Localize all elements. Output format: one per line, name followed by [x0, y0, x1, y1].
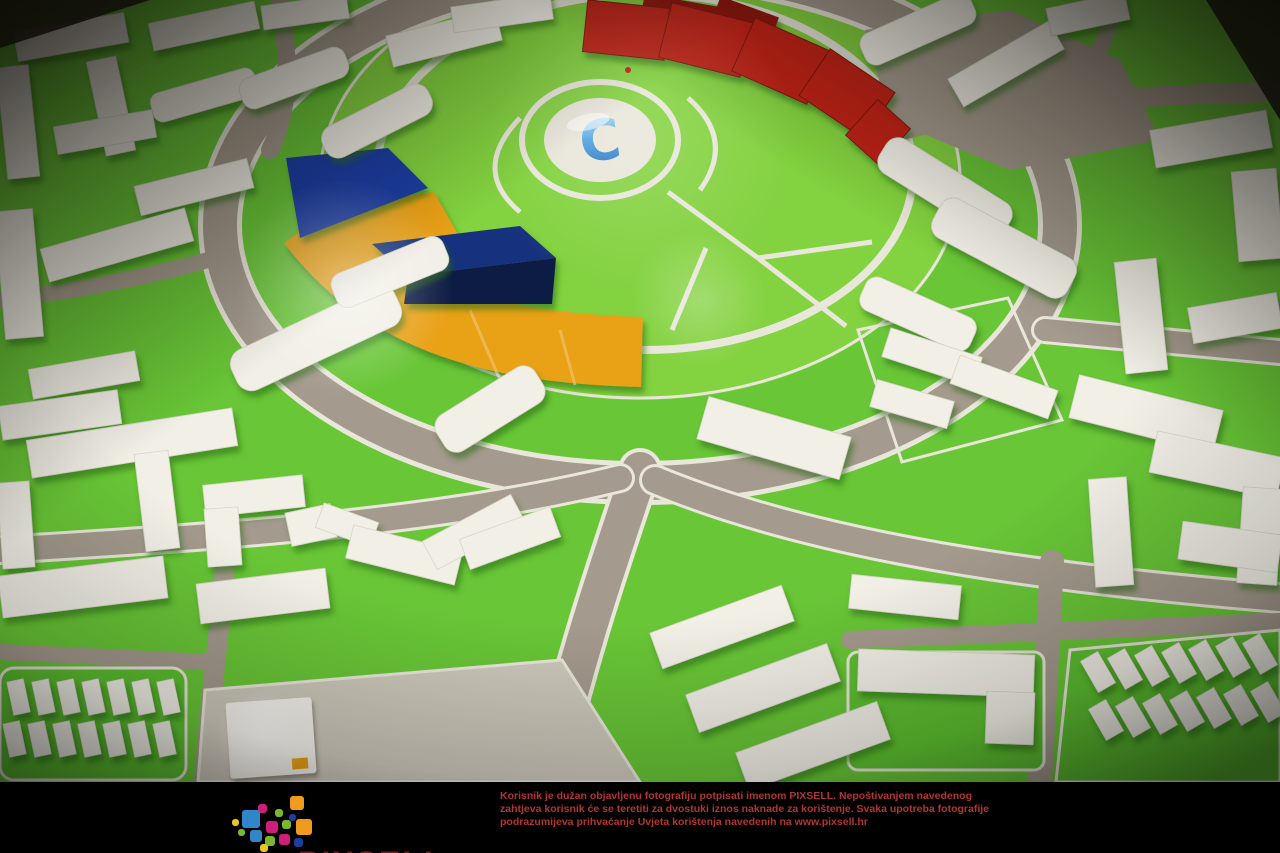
pixsell-logo: PIXSELL: [232, 782, 482, 853]
logo-pixel: [260, 844, 268, 852]
watermark-line-2: zahtjeva korisnik će se teretiti za dvos…: [500, 803, 1060, 816]
pixsell-stock-photo: C: [0, 0, 1280, 853]
watermark-line-3: podrazumijeva prihvaćanje Uvjeta korište…: [500, 816, 1060, 829]
logo-pixel: [250, 830, 262, 842]
logo-pixel: [242, 810, 260, 828]
city-model-photo: C: [0, 0, 1280, 782]
logo-pixel: [232, 819, 239, 826]
watermark-text: Korisnik je dužan objavljenu fotografiju…: [500, 790, 1060, 829]
watermark-bar: PIXSELL Korisnik je dužan objavljenu fot…: [0, 782, 1280, 853]
logo-pixel: [296, 819, 312, 835]
logo-pixel: [279, 834, 290, 845]
logo-pixel: [282, 820, 291, 829]
logo-pixel: [238, 829, 245, 836]
logo-pixel: [290, 796, 304, 810]
photo-vignette: [0, 0, 1280, 782]
logo-pixel: [266, 821, 278, 833]
pixsell-logo-text: PIXSELL: [298, 845, 445, 853]
logo-pixel: [275, 809, 283, 817]
watermark-line-1: Korisnik je dužan objavljenu fotografiju…: [500, 790, 1060, 803]
